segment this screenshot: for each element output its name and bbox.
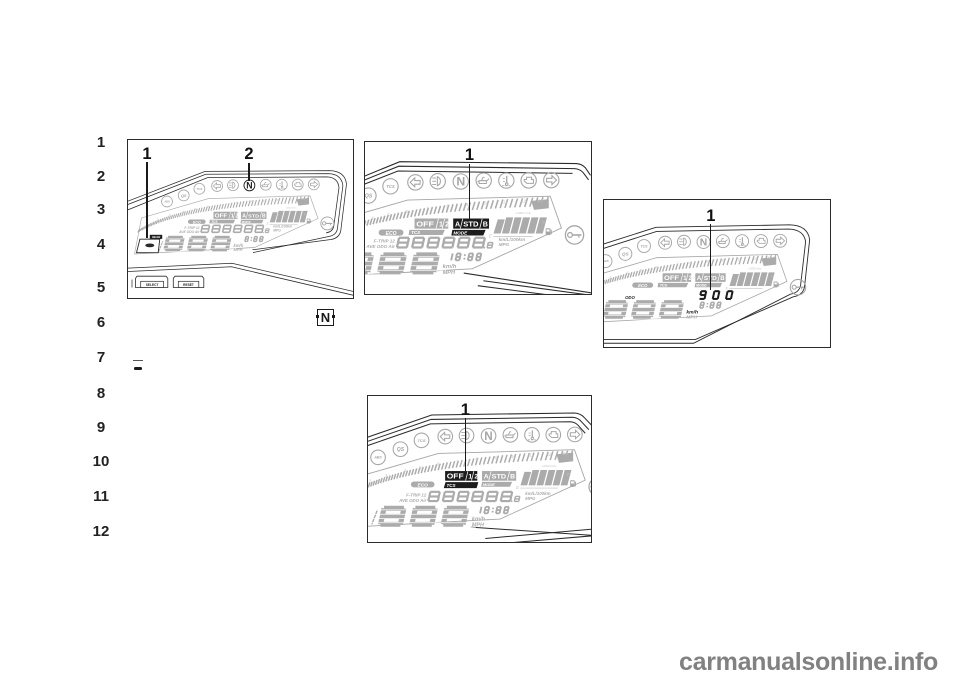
svg-text:10: 10 [484,201,489,206]
svg-text:F-TRIP 12: F-TRIP 12 [374,239,396,244]
svg-text:A: A [455,221,460,229]
svg-text:TCS: TCS [417,438,425,443]
svg-text:B: B [483,221,488,229]
svg-text:MPH: MPH [687,314,698,320]
svg-text:11: 11 [503,200,508,205]
svg-text:OFF: OFF [664,275,679,282]
svg-text:MPH: MPH [472,523,484,529]
svg-text:B: B [721,276,726,282]
svg-text:ABS: ABS [604,259,610,263]
svg-text:1: 1 [230,213,233,219]
svg-text:7: 7 [221,203,223,207]
svg-text:RESET: RESET [183,283,194,287]
svg-text:TCS: TCS [211,220,218,224]
svg-text:MODE: MODE [454,231,469,236]
svg-text:MPH: MPH [233,247,242,252]
svg-text:13: 13 [301,197,305,201]
svg-text:E: E [266,222,269,226]
svg-text:5: 5 [388,213,391,218]
svg-text:2: 2 [235,213,238,219]
svg-text:AVE ODO Air: AVE ODO Air [366,244,397,249]
svg-text:MPG: MPG [525,496,536,501]
svg-text:B: B [262,213,266,219]
svg-text:AVE ODO Air: AVE ODO Air [178,230,200,234]
svg-text:km/h: km/h [687,309,699,315]
svg-text:5: 5 [194,207,196,211]
svg-text:ECO: ECO [638,283,648,288]
svg-text:F-TRIP 12: F-TRIP 12 [406,492,427,497]
svg-text:3: 3 [168,213,170,217]
svg-text:OFF: OFF [447,473,465,481]
svg-text:TCS: TCS [387,184,396,189]
svg-text:STD: STD [464,222,479,229]
svg-text:7: 7 [673,263,676,267]
svg-text:MODE: MODE [483,482,495,487]
svg-text:A: A [697,276,702,282]
svg-text:2: 2 [155,217,158,221]
svg-text:ECO: ECO [192,220,200,224]
svg-text:ABS: ABS [163,199,170,203]
svg-text:QS: QS [180,194,186,198]
svg-text:ODO: ODO [625,295,635,300]
svg-text:1: 1 [439,221,443,229]
svg-text:x1000 r/min: x1000 r/min [284,207,297,210]
svg-text:N: N [700,237,707,248]
svg-text:E: E [726,286,729,290]
svg-text:2: 2 [446,221,450,229]
svg-text:ECO: ECO [386,231,397,237]
svg-text:2: 2 [689,276,693,282]
svg-text:1: 1 [468,474,472,481]
svg-text:6: 6 [207,205,209,209]
svg-text:B: B [510,474,515,481]
svg-text:AVE ODO Air: AVE ODO Air [398,498,426,503]
svg-text:OFF: OFF [214,213,228,219]
svg-text:E: E [516,485,519,490]
svg-text:SELECT: SELECT [145,283,158,287]
svg-text:10: 10 [262,199,266,203]
svg-text:11: 11 [529,453,533,458]
svg-text:MPH: MPH [443,270,456,276]
svg-text:3: 3 [610,276,613,280]
svg-text:TCS: TCS [412,230,421,235]
svg-text:N: N [457,175,466,189]
svg-text:QS: QS [397,447,405,453]
svg-text:12: 12 [547,452,552,457]
svg-text:OFF: OFF [417,220,435,229]
svg-text:QS: QS [622,251,629,256]
svg-text:MPG: MPG [499,242,510,247]
svg-text:F: F [567,472,570,477]
svg-text:9: 9 [250,200,252,204]
svg-text:12: 12 [521,199,526,204]
svg-text:ABS: ABS [373,456,382,460]
svg-text:x1000 r/min: x1000 r/min [541,464,557,468]
svg-text:MODE: MODE [241,220,251,224]
svg-text:11: 11 [276,198,279,202]
svg-text:4: 4 [182,209,184,213]
svg-text:12: 12 [753,257,757,261]
svg-text:13: 13 [563,451,568,456]
svg-text:A: A [242,213,246,219]
svg-text:13: 13 [538,198,543,203]
svg-text:9: 9 [707,259,709,263]
svg-text:ECO: ECO [417,483,428,489]
svg-text:MODE: MODE [696,283,707,287]
svg-text:km/L/100km: km/L/100km [499,237,525,242]
svg-text:4: 4 [626,271,628,275]
svg-text:STD: STD [492,474,507,481]
svg-text:TCS: TCS [446,483,455,488]
svg-text:2: 2 [474,474,478,481]
svg-text:N: N [484,430,492,443]
svg-text:8: 8 [690,261,693,265]
svg-text:GEAR: GEAR [151,235,160,239]
svg-text:MPG: MPG [273,228,281,232]
svg-text:N: N [246,180,252,190]
svg-text:E: E [489,234,493,239]
svg-text:10: 10 [511,454,516,459]
svg-text:12: 12 [289,197,293,201]
svg-text:8: 8 [236,201,238,205]
svg-text:1: 1 [684,276,688,282]
svg-text:x1000 r/min: x1000 r/min [515,211,532,215]
svg-text:A: A [484,474,489,481]
svg-text:x1000 r/min: x1000 r/min [748,267,763,270]
svg-text:TCS: TCS [641,244,649,248]
svg-text:QS: QS [365,194,373,200]
svg-text:11: 11 [738,257,742,261]
svg-text:TCS: TCS [196,187,202,191]
svg-text:TCS: TCS [660,283,668,287]
svg-text:F: F [543,220,546,225]
svg-text:STD: STD [248,213,259,219]
